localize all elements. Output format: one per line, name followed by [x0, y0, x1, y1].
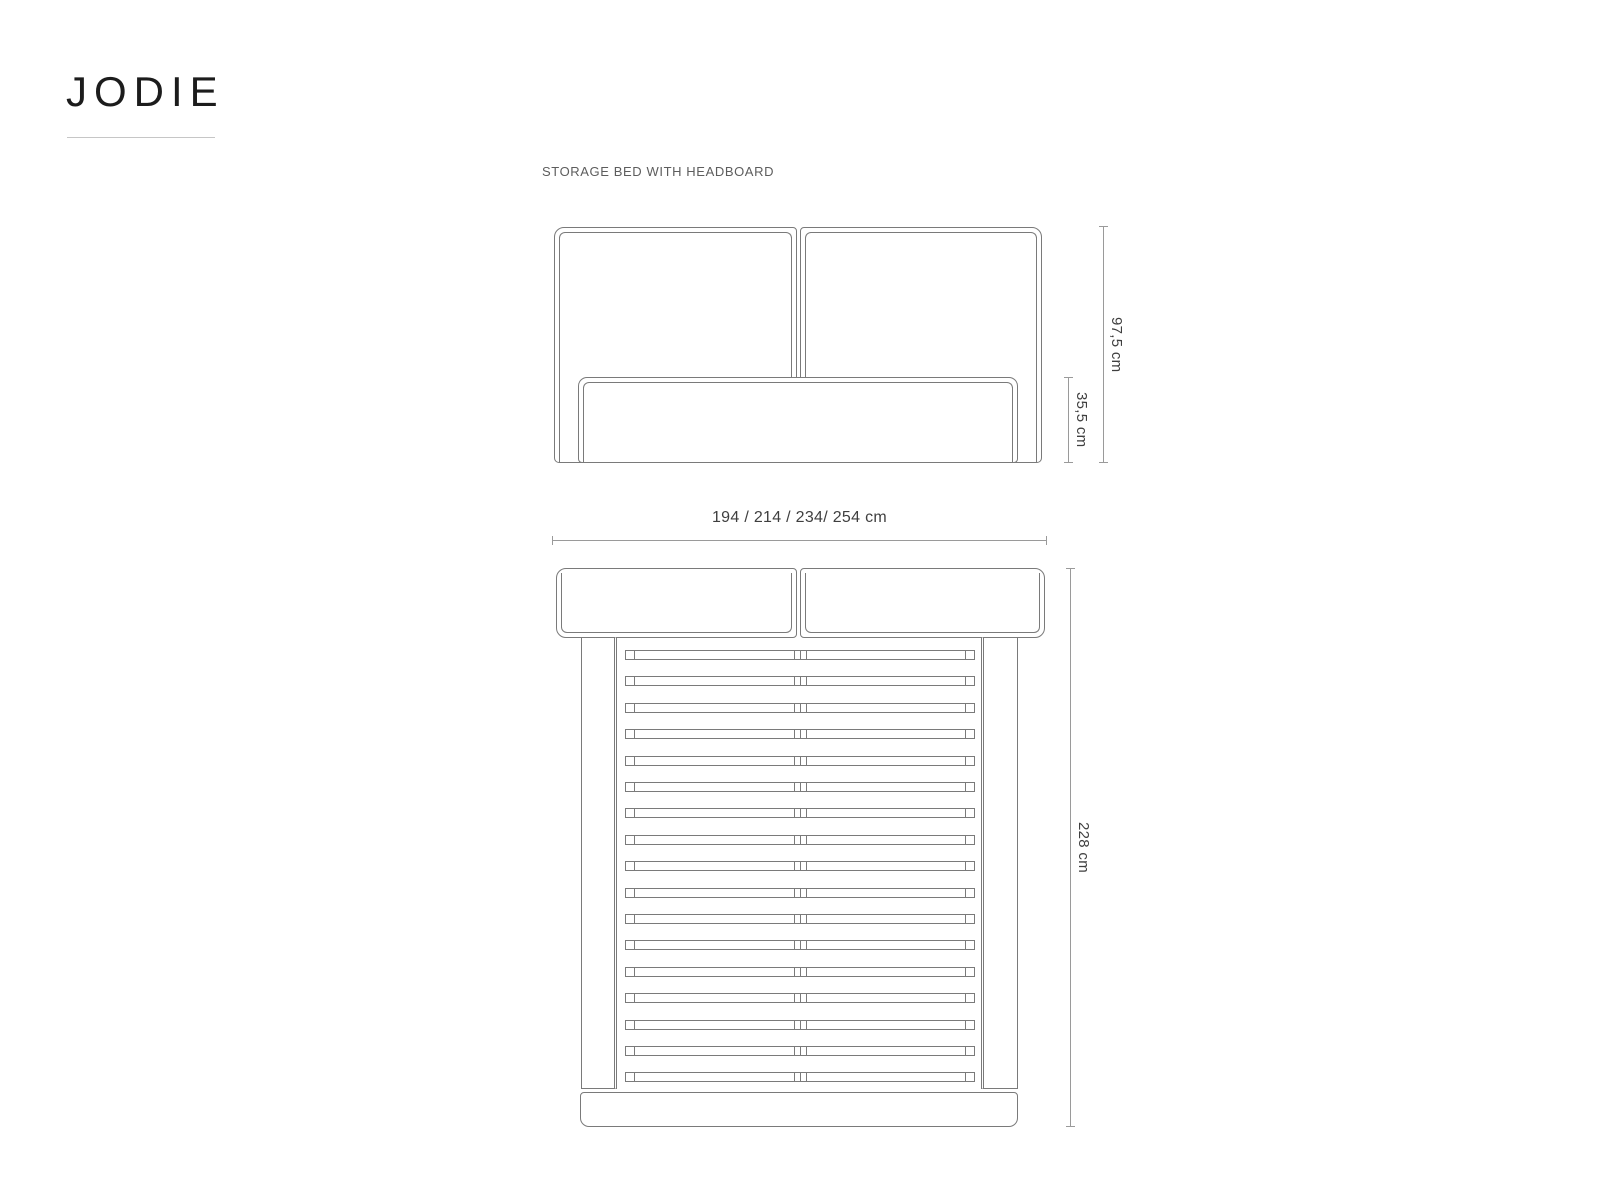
slat-divider	[634, 1047, 635, 1055]
slat-divider	[794, 730, 795, 738]
slat-divider	[800, 730, 801, 738]
slat-divider	[806, 836, 807, 844]
slat-divider	[794, 677, 795, 685]
slat-divider	[794, 809, 795, 817]
slat-divider	[634, 941, 635, 949]
slat-divider	[806, 704, 807, 712]
dimension-label-length: 228 cm	[1075, 568, 1092, 1127]
slat-divider	[806, 968, 807, 976]
bed-slat	[625, 835, 975, 845]
product-subtitle: STORAGE BED WITH HEADBOARD	[542, 164, 774, 179]
bed-slat	[625, 914, 975, 924]
slat-divider	[800, 994, 801, 1002]
slat-divider	[965, 757, 966, 765]
slat-divider	[965, 1073, 966, 1081]
dimension-tick	[1066, 568, 1075, 569]
bed-slat	[625, 1046, 975, 1056]
slat-divider	[806, 889, 807, 897]
bed-slat	[625, 1072, 975, 1082]
headboard-seam	[561, 573, 792, 633]
slat-divider	[965, 836, 966, 844]
slat-divider	[806, 1073, 807, 1081]
slat-divider	[806, 651, 807, 659]
slat-divider	[965, 1047, 966, 1055]
bed-slat	[625, 782, 975, 792]
slats-area	[625, 637, 975, 1089]
slat-divider	[965, 915, 966, 923]
slat-divider	[800, 809, 801, 817]
slat-divider	[806, 809, 807, 817]
slat-divider	[634, 809, 635, 817]
slat-divider	[800, 677, 801, 685]
bed-slat	[625, 650, 975, 660]
dimension-tick	[1064, 377, 1073, 378]
slat-divider	[800, 1073, 801, 1081]
slat-divider	[794, 968, 795, 976]
slat-divider	[800, 1021, 801, 1029]
bed-slat	[625, 729, 975, 739]
slat-divider	[800, 1047, 801, 1055]
slat-divider	[634, 704, 635, 712]
slat-divider	[634, 783, 635, 791]
slat-divider	[794, 704, 795, 712]
headboard-right-panel-top	[800, 568, 1045, 638]
slat-divider	[634, 994, 635, 1002]
dimension-line-length	[1070, 568, 1071, 1127]
dimension-tick	[1099, 462, 1108, 463]
bed-slat	[625, 676, 975, 686]
slat-divider	[806, 757, 807, 765]
dimension-label-base-height: 35,5 cm	[1073, 377, 1090, 463]
bed-slat	[625, 1020, 975, 1030]
slat-divider	[794, 651, 795, 659]
dimension-label-width: 194 / 214 / 234/ 254 cm	[552, 509, 1047, 527]
slat-divider	[806, 941, 807, 949]
slat-divider	[794, 941, 795, 949]
slat-divider	[634, 862, 635, 870]
slat-divider	[794, 994, 795, 1002]
slat-divider	[634, 757, 635, 765]
slat-divider	[794, 915, 795, 923]
bed-slat	[625, 940, 975, 950]
slat-divider	[634, 677, 635, 685]
slat-divider	[634, 968, 635, 976]
bed-slat	[625, 703, 975, 713]
slat-divider	[800, 889, 801, 897]
slat-divider	[965, 783, 966, 791]
slat-divider	[794, 889, 795, 897]
bed-slat	[625, 967, 975, 977]
dimension-tick	[1099, 226, 1108, 227]
slat-divider	[965, 994, 966, 1002]
slat-divider	[794, 757, 795, 765]
dimension-label-total-height: 97,5 cm	[1108, 226, 1125, 463]
slat-divider	[634, 836, 635, 844]
slat-divider	[634, 730, 635, 738]
slat-divider	[634, 1021, 635, 1029]
slat-divider	[794, 836, 795, 844]
slat-divider	[806, 862, 807, 870]
slat-divider	[965, 862, 966, 870]
slat-divider	[806, 677, 807, 685]
headboard-seam	[805, 573, 1040, 633]
slat-divider	[806, 783, 807, 791]
side-rail-right	[981, 637, 1018, 1089]
slat-divider	[800, 651, 801, 659]
slat-divider	[965, 704, 966, 712]
bed-base-front	[578, 377, 1018, 463]
slat-divider	[806, 1021, 807, 1029]
slat-divider	[965, 677, 966, 685]
dimension-tick	[1046, 536, 1047, 545]
title-underline	[67, 137, 215, 138]
slat-divider	[794, 1021, 795, 1029]
slat-divider	[800, 704, 801, 712]
slat-divider	[965, 968, 966, 976]
slat-divider	[800, 968, 801, 976]
bed-slat	[625, 756, 975, 766]
slat-divider	[800, 941, 801, 949]
slat-divider	[800, 757, 801, 765]
slat-divider	[794, 1073, 795, 1081]
dimension-line-base-height	[1068, 377, 1069, 463]
slat-divider	[806, 1047, 807, 1055]
slat-divider	[965, 651, 966, 659]
slat-divider	[965, 809, 966, 817]
slat-divider	[800, 862, 801, 870]
dimension-tick	[1066, 1126, 1075, 1127]
dimension-tick	[552, 536, 553, 545]
dimension-line-total-height	[1103, 226, 1104, 463]
bed-slat	[625, 808, 975, 818]
slat-divider	[806, 994, 807, 1002]
bed-slat	[625, 993, 975, 1003]
slat-divider	[634, 651, 635, 659]
side-rail-left	[581, 637, 617, 1089]
slat-divider	[794, 783, 795, 791]
slat-divider	[634, 915, 635, 923]
spec-sheet-page: JODIE STORAGE BED WITH HEADBOARD 35,5 cm…	[0, 0, 1600, 1200]
bed-slat	[625, 888, 975, 898]
slat-divider	[794, 1047, 795, 1055]
slat-divider	[634, 889, 635, 897]
page-title: JODIE	[66, 68, 225, 116]
dimension-line-width	[552, 540, 1047, 541]
bed-base-seam	[583, 382, 1013, 462]
slat-divider	[634, 1073, 635, 1081]
headboard-left-panel-top	[556, 568, 797, 638]
slat-divider	[965, 889, 966, 897]
dimension-tick	[1064, 462, 1073, 463]
slat-divider	[806, 915, 807, 923]
slat-divider	[965, 730, 966, 738]
slat-divider	[965, 1021, 966, 1029]
slat-divider	[965, 941, 966, 949]
footboard-bar	[580, 1092, 1018, 1127]
slat-divider	[800, 783, 801, 791]
slat-divider	[800, 836, 801, 844]
bed-slat	[625, 861, 975, 871]
slat-divider	[806, 730, 807, 738]
slat-divider	[800, 915, 801, 923]
slat-divider	[794, 862, 795, 870]
